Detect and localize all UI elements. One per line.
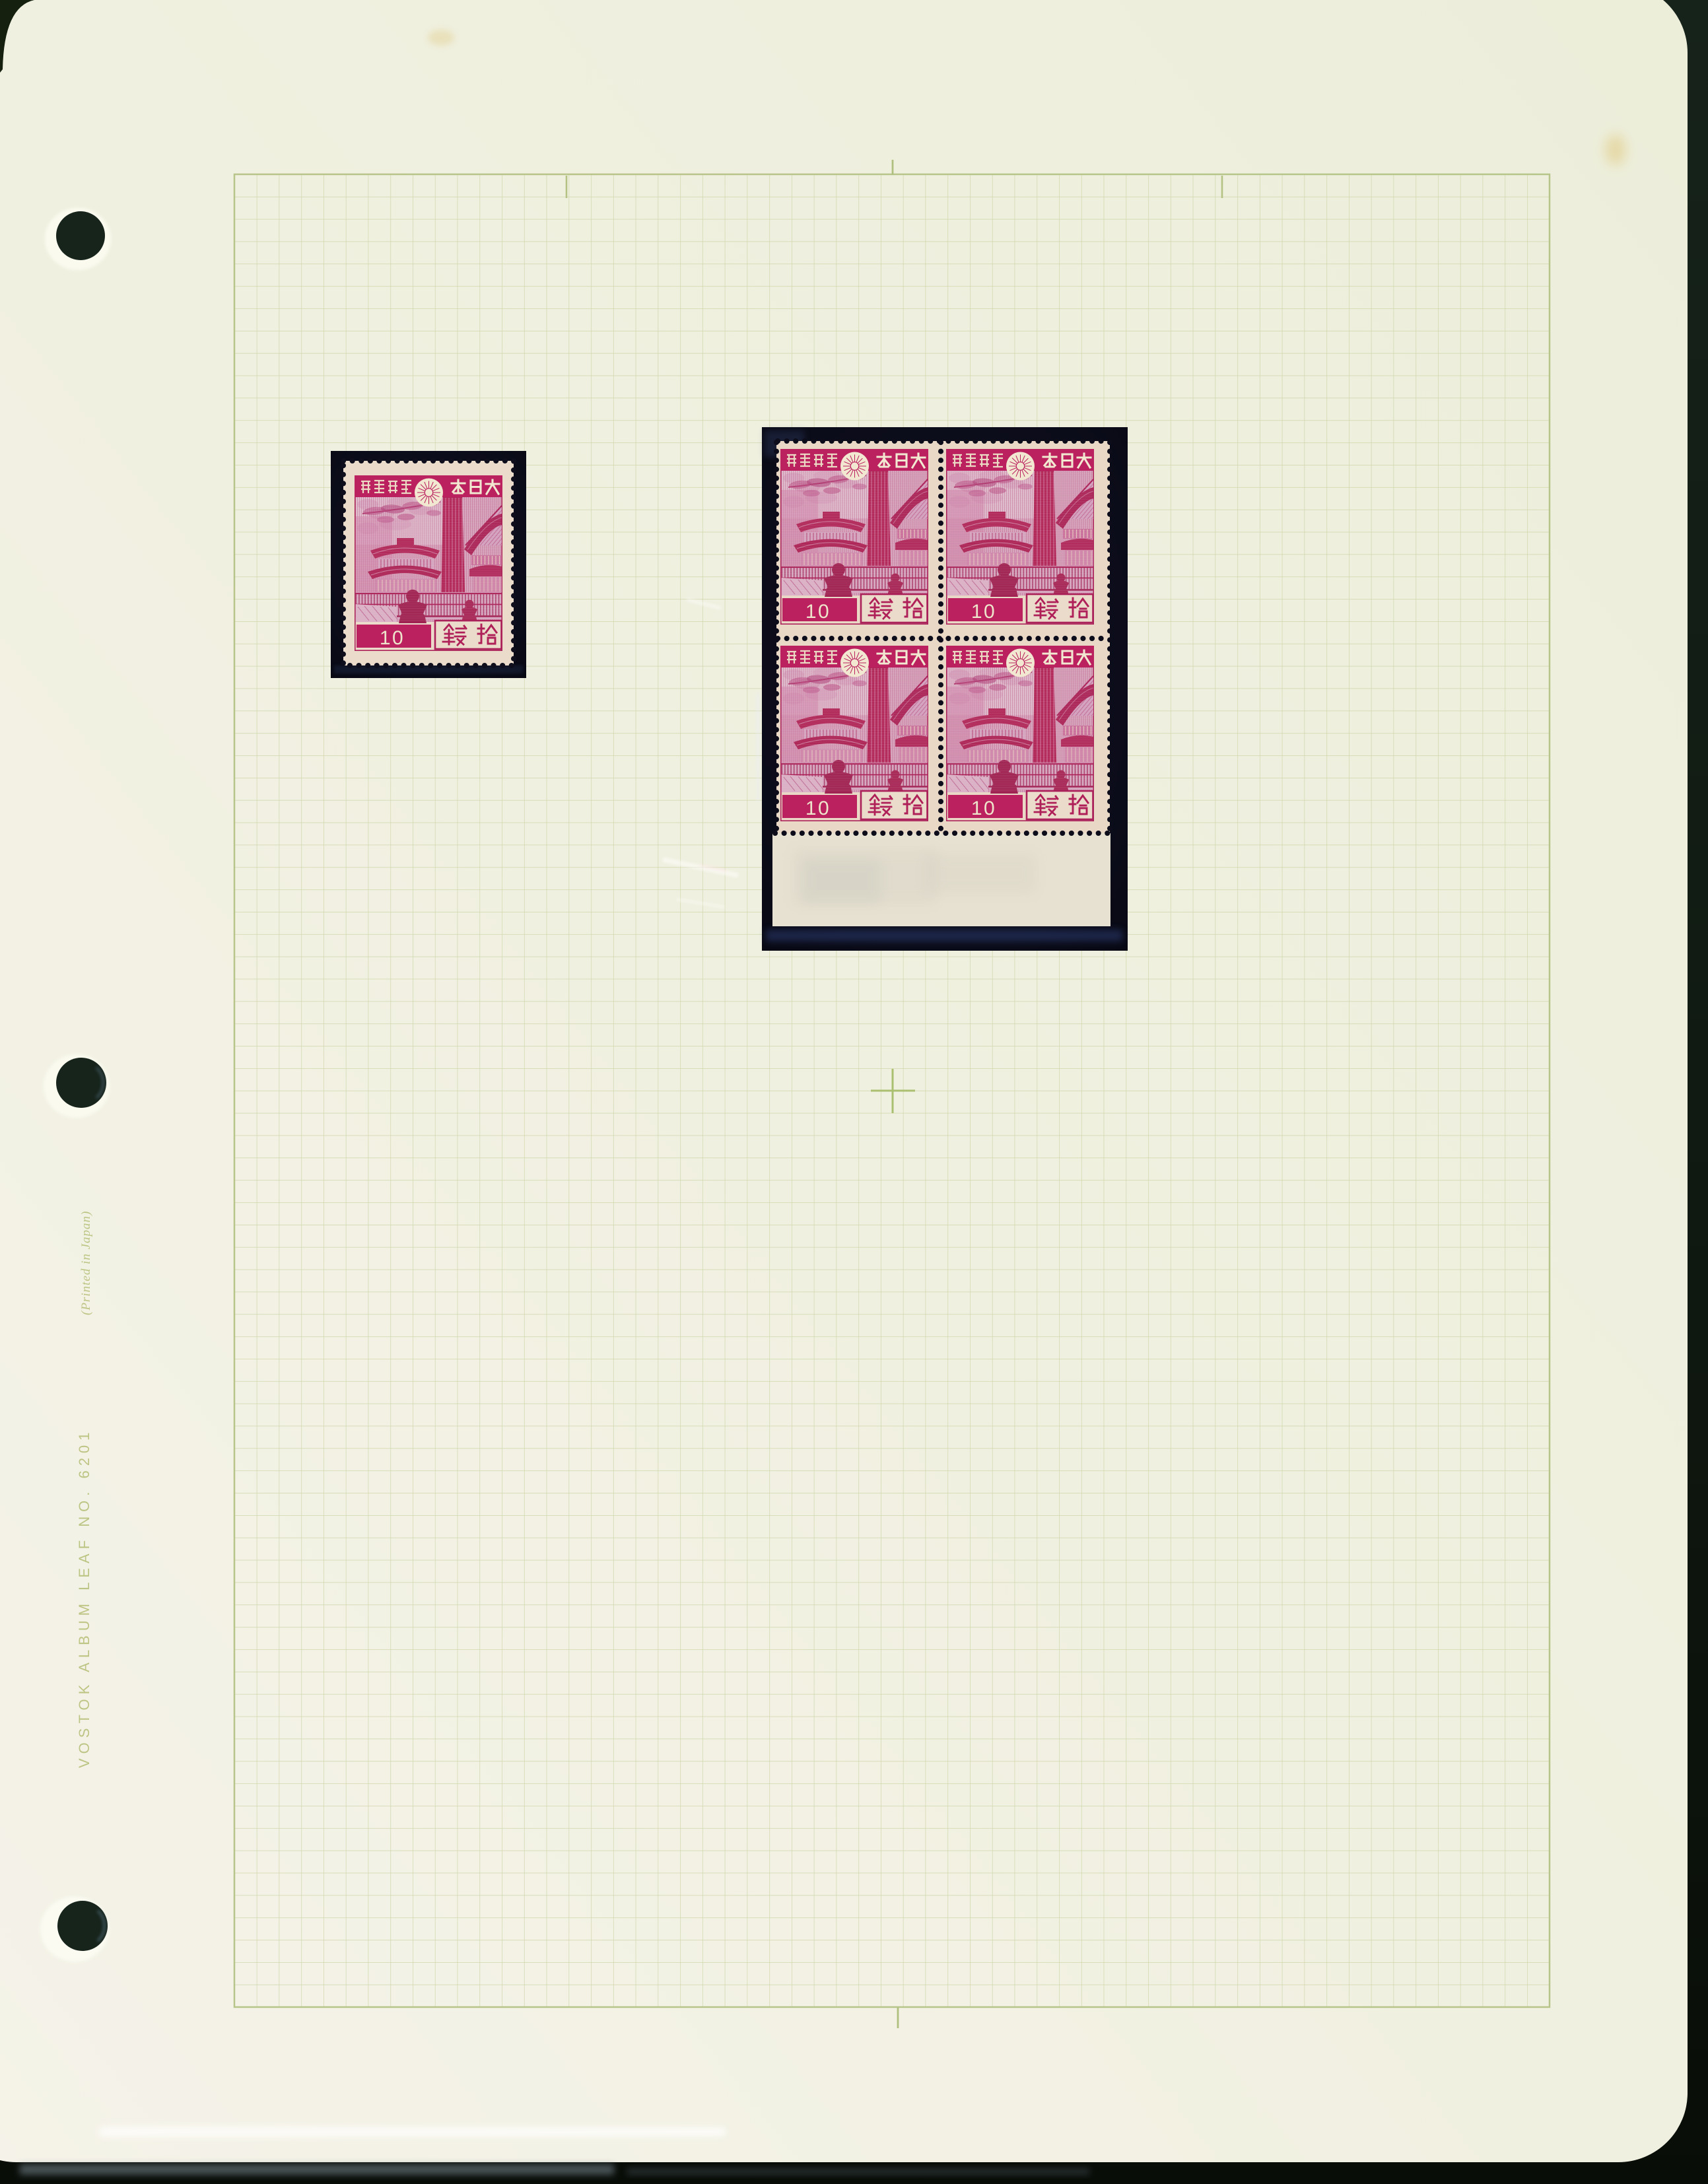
- svg-text:(Printed in Japan): (Printed in Japan): [79, 1211, 93, 1315]
- svg-text:VOSTOK ALBUM LEAF NO. 6201: VOSTOK ALBUM LEAF NO. 6201: [76, 1428, 92, 1768]
